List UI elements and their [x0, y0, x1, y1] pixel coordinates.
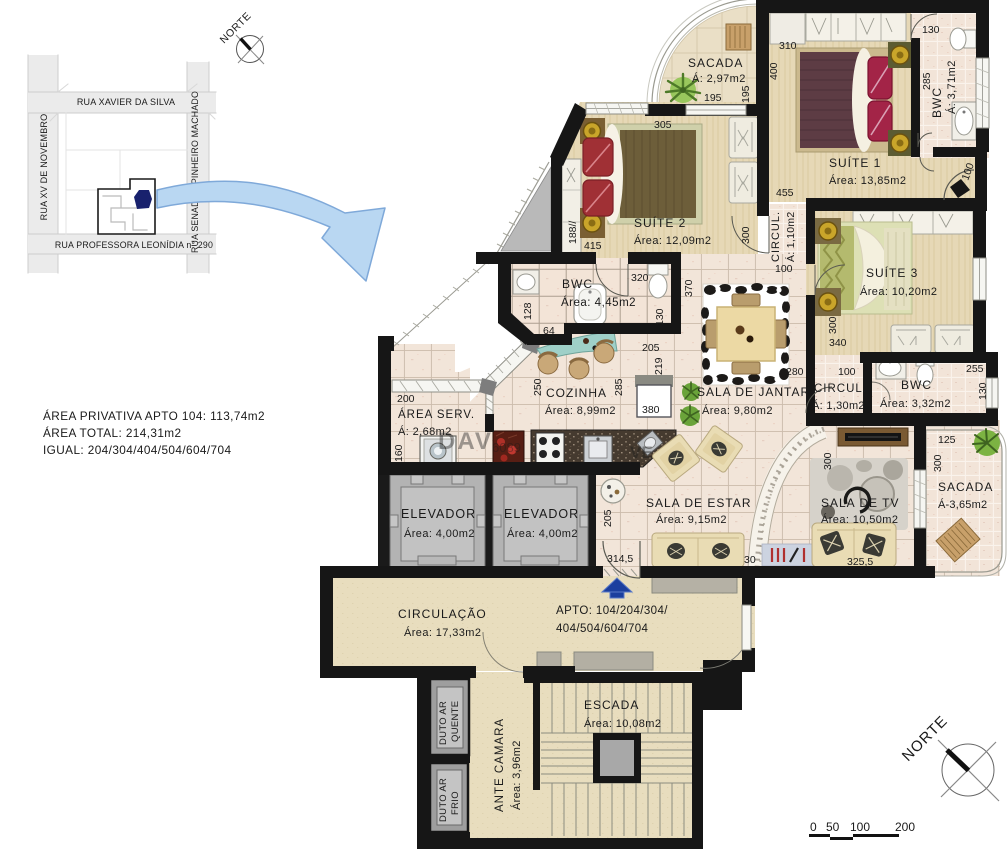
svg-text:DUTO AR: DUTO AR [438, 701, 449, 745]
svg-text:ÁREA TOTAL: 214,31m2: ÁREA TOTAL: 214,31m2 [43, 426, 182, 440]
svg-text:370: 370 [683, 279, 695, 297]
svg-text:FRIO: FRIO [450, 791, 461, 815]
svg-text:340: 340 [829, 337, 847, 349]
svg-text:195: 195 [704, 92, 722, 104]
svg-text:400: 400 [768, 62, 780, 80]
svg-text:305: 305 [654, 119, 672, 131]
svg-text:SACADA: SACADA [688, 56, 743, 70]
svg-text:Á: 2,68m2: Á: 2,68m2 [398, 425, 452, 438]
svg-text:ELEVADOR: ELEVADOR [504, 507, 579, 521]
svg-text:285: 285 [613, 378, 625, 396]
svg-text:Área: 10,50m2: Área: 10,50m2 [821, 513, 898, 526]
svg-text:APTO: 104/204/304/: APTO: 104/204/304/ [556, 605, 668, 617]
svg-text:300: 300 [822, 452, 834, 470]
svg-text:415: 415 [584, 240, 602, 252]
svg-text:Área: 3,32m2: Área: 3,32m2 [880, 397, 951, 410]
svg-text:SALA DE ESTAR: SALA DE ESTAR [646, 496, 751, 510]
svg-text:ÁREA PRIVATIVA APTO 104: 113,7: ÁREA PRIVATIVA APTO 104: 113,74m2 [43, 409, 265, 423]
svg-text:130: 130 [654, 308, 666, 326]
svg-text:ESCADA: ESCADA [584, 698, 639, 712]
svg-text:188//: 188// [567, 221, 579, 244]
svg-text:IGUAL: 204/304/404/504/604/704: IGUAL: 204/304/404/504/604/704 [43, 443, 231, 457]
svg-text:Área: 3,96m2: Área: 3,96m2 [510, 740, 523, 810]
svg-text:Área: 9,15m2: Área: 9,15m2 [656, 513, 727, 526]
svg-text:380: 380 [642, 404, 660, 416]
svg-text:100: 100 [775, 263, 793, 275]
svg-text:SUÍTE 2: SUÍTE 2 [634, 215, 686, 230]
svg-text:BWC: BWC [562, 277, 593, 291]
svg-text:219: 219 [653, 357, 665, 375]
svg-text:30: 30 [744, 554, 756, 566]
svg-text:SALA DE JANTAR: SALA DE JANTAR [697, 385, 810, 399]
svg-text:SUÍTE 1: SUÍTE 1 [829, 155, 881, 170]
svg-text:6089: 6089 [492, 440, 521, 455]
svg-text:Área: 9,80m2: Área: 9,80m2 [702, 404, 773, 417]
svg-text:Área: 10,20m2: Área: 10,20m2 [860, 285, 937, 298]
svg-text:125: 125 [938, 434, 956, 446]
svg-text:455: 455 [776, 187, 794, 199]
svg-text:205: 205 [602, 509, 614, 527]
svg-text:130: 130 [922, 24, 940, 36]
svg-text:RUA SENADOR PINHEIRO MACHADO: RUA SENADOR PINHEIRO MACHADO [190, 91, 200, 253]
svg-text:280: 280 [786, 366, 804, 378]
svg-text:Á: 2,97m2: Á: 2,97m2 [692, 72, 746, 85]
svg-text:CIRCULAÇÃO: CIRCULAÇÃO [398, 607, 487, 621]
svg-text:BWC: BWC [930, 87, 944, 118]
svg-text:Área: 4,45m2: Área: 4,45m2 [561, 296, 636, 309]
svg-text:404/504/604/704: 404/504/604/704 [556, 623, 649, 635]
svg-text:SACADA: SACADA [938, 480, 993, 494]
svg-text:QUENTE: QUENTE [450, 701, 461, 742]
svg-text:255: 255 [966, 363, 984, 375]
svg-text:300: 300 [740, 226, 752, 244]
svg-text:Área: 8,99m2: Área: 8,99m2 [545, 404, 616, 417]
svg-text:205: 205 [642, 342, 660, 354]
svg-text:200: 200 [397, 393, 415, 405]
svg-text:Á: 1,10m2: Á: 1,10m2 [784, 211, 797, 262]
svg-text:320: 320 [631, 272, 649, 284]
svg-text:200: 200 [895, 820, 915, 834]
svg-text:RUA XV DE NOVEMBRO: RUA XV DE NOVEMBRO [39, 114, 49, 221]
svg-text:310: 310 [779, 40, 797, 52]
svg-text:285: 285 [921, 72, 933, 90]
svg-text:314,5: 314,5 [607, 553, 633, 565]
svg-text:0: 0 [810, 820, 817, 834]
svg-text:SUÍTE 3: SUÍTE 3 [866, 265, 918, 280]
svg-text:Área: 12,09m2: Área: 12,09m2 [634, 234, 711, 247]
svg-text:Á: 3,71m2: Á: 3,71m2 [945, 60, 958, 114]
svg-text:128: 128 [522, 302, 534, 320]
svg-text:160: 160 [393, 444, 405, 462]
svg-text:ÁREA SERV.: ÁREA SERV. [398, 408, 475, 421]
svg-text:DUTO AR: DUTO AR [438, 778, 449, 822]
svg-text:Á: 1,30m2: Á: 1,30m2 [812, 399, 865, 412]
svg-text:325,5: 325,5 [847, 556, 873, 568]
svg-text:300: 300 [932, 454, 944, 472]
svg-text:Área: 4,00m2: Área: 4,00m2 [404, 527, 475, 540]
svg-text:300: 300 [827, 316, 839, 334]
svg-text:Área: 4,00m2: Área: 4,00m2 [507, 527, 578, 540]
svg-text:250: 250 [532, 378, 544, 396]
svg-text:SALA DE TV: SALA DE TV [821, 496, 899, 510]
svg-text:64: 64 [543, 325, 555, 337]
svg-text:ANTE CAMARA: ANTE CAMARA [494, 718, 506, 812]
svg-text:50: 50 [826, 820, 840, 834]
svg-text:130: 130 [977, 382, 989, 400]
svg-text:CIRCUL.: CIRCUL. [770, 211, 782, 262]
svg-text:Área: 10,08m2: Área: 10,08m2 [584, 717, 661, 730]
svg-text:100: 100 [838, 366, 856, 378]
svg-text:COZINHA: COZINHA [546, 386, 607, 400]
svg-text:195: 195 [740, 85, 752, 103]
svg-text:100: 100 [850, 820, 870, 834]
svg-text:CIRCUL.: CIRCUL. [814, 383, 867, 395]
svg-text:Á-3,65m2: Á-3,65m2 [938, 498, 987, 511]
svg-text:Área: 17,33m2: Área: 17,33m2 [404, 626, 481, 639]
svg-text:Área: 13,85m2: Área: 13,85m2 [829, 174, 906, 187]
svg-text:VE: VE [630, 443, 653, 462]
svg-text:ELEVADOR: ELEVADOR [401, 507, 476, 521]
svg-text:RUA XAVIER DA SILVA: RUA XAVIER DA SILVA [77, 97, 175, 107]
svg-text:BWC: BWC [901, 378, 932, 392]
